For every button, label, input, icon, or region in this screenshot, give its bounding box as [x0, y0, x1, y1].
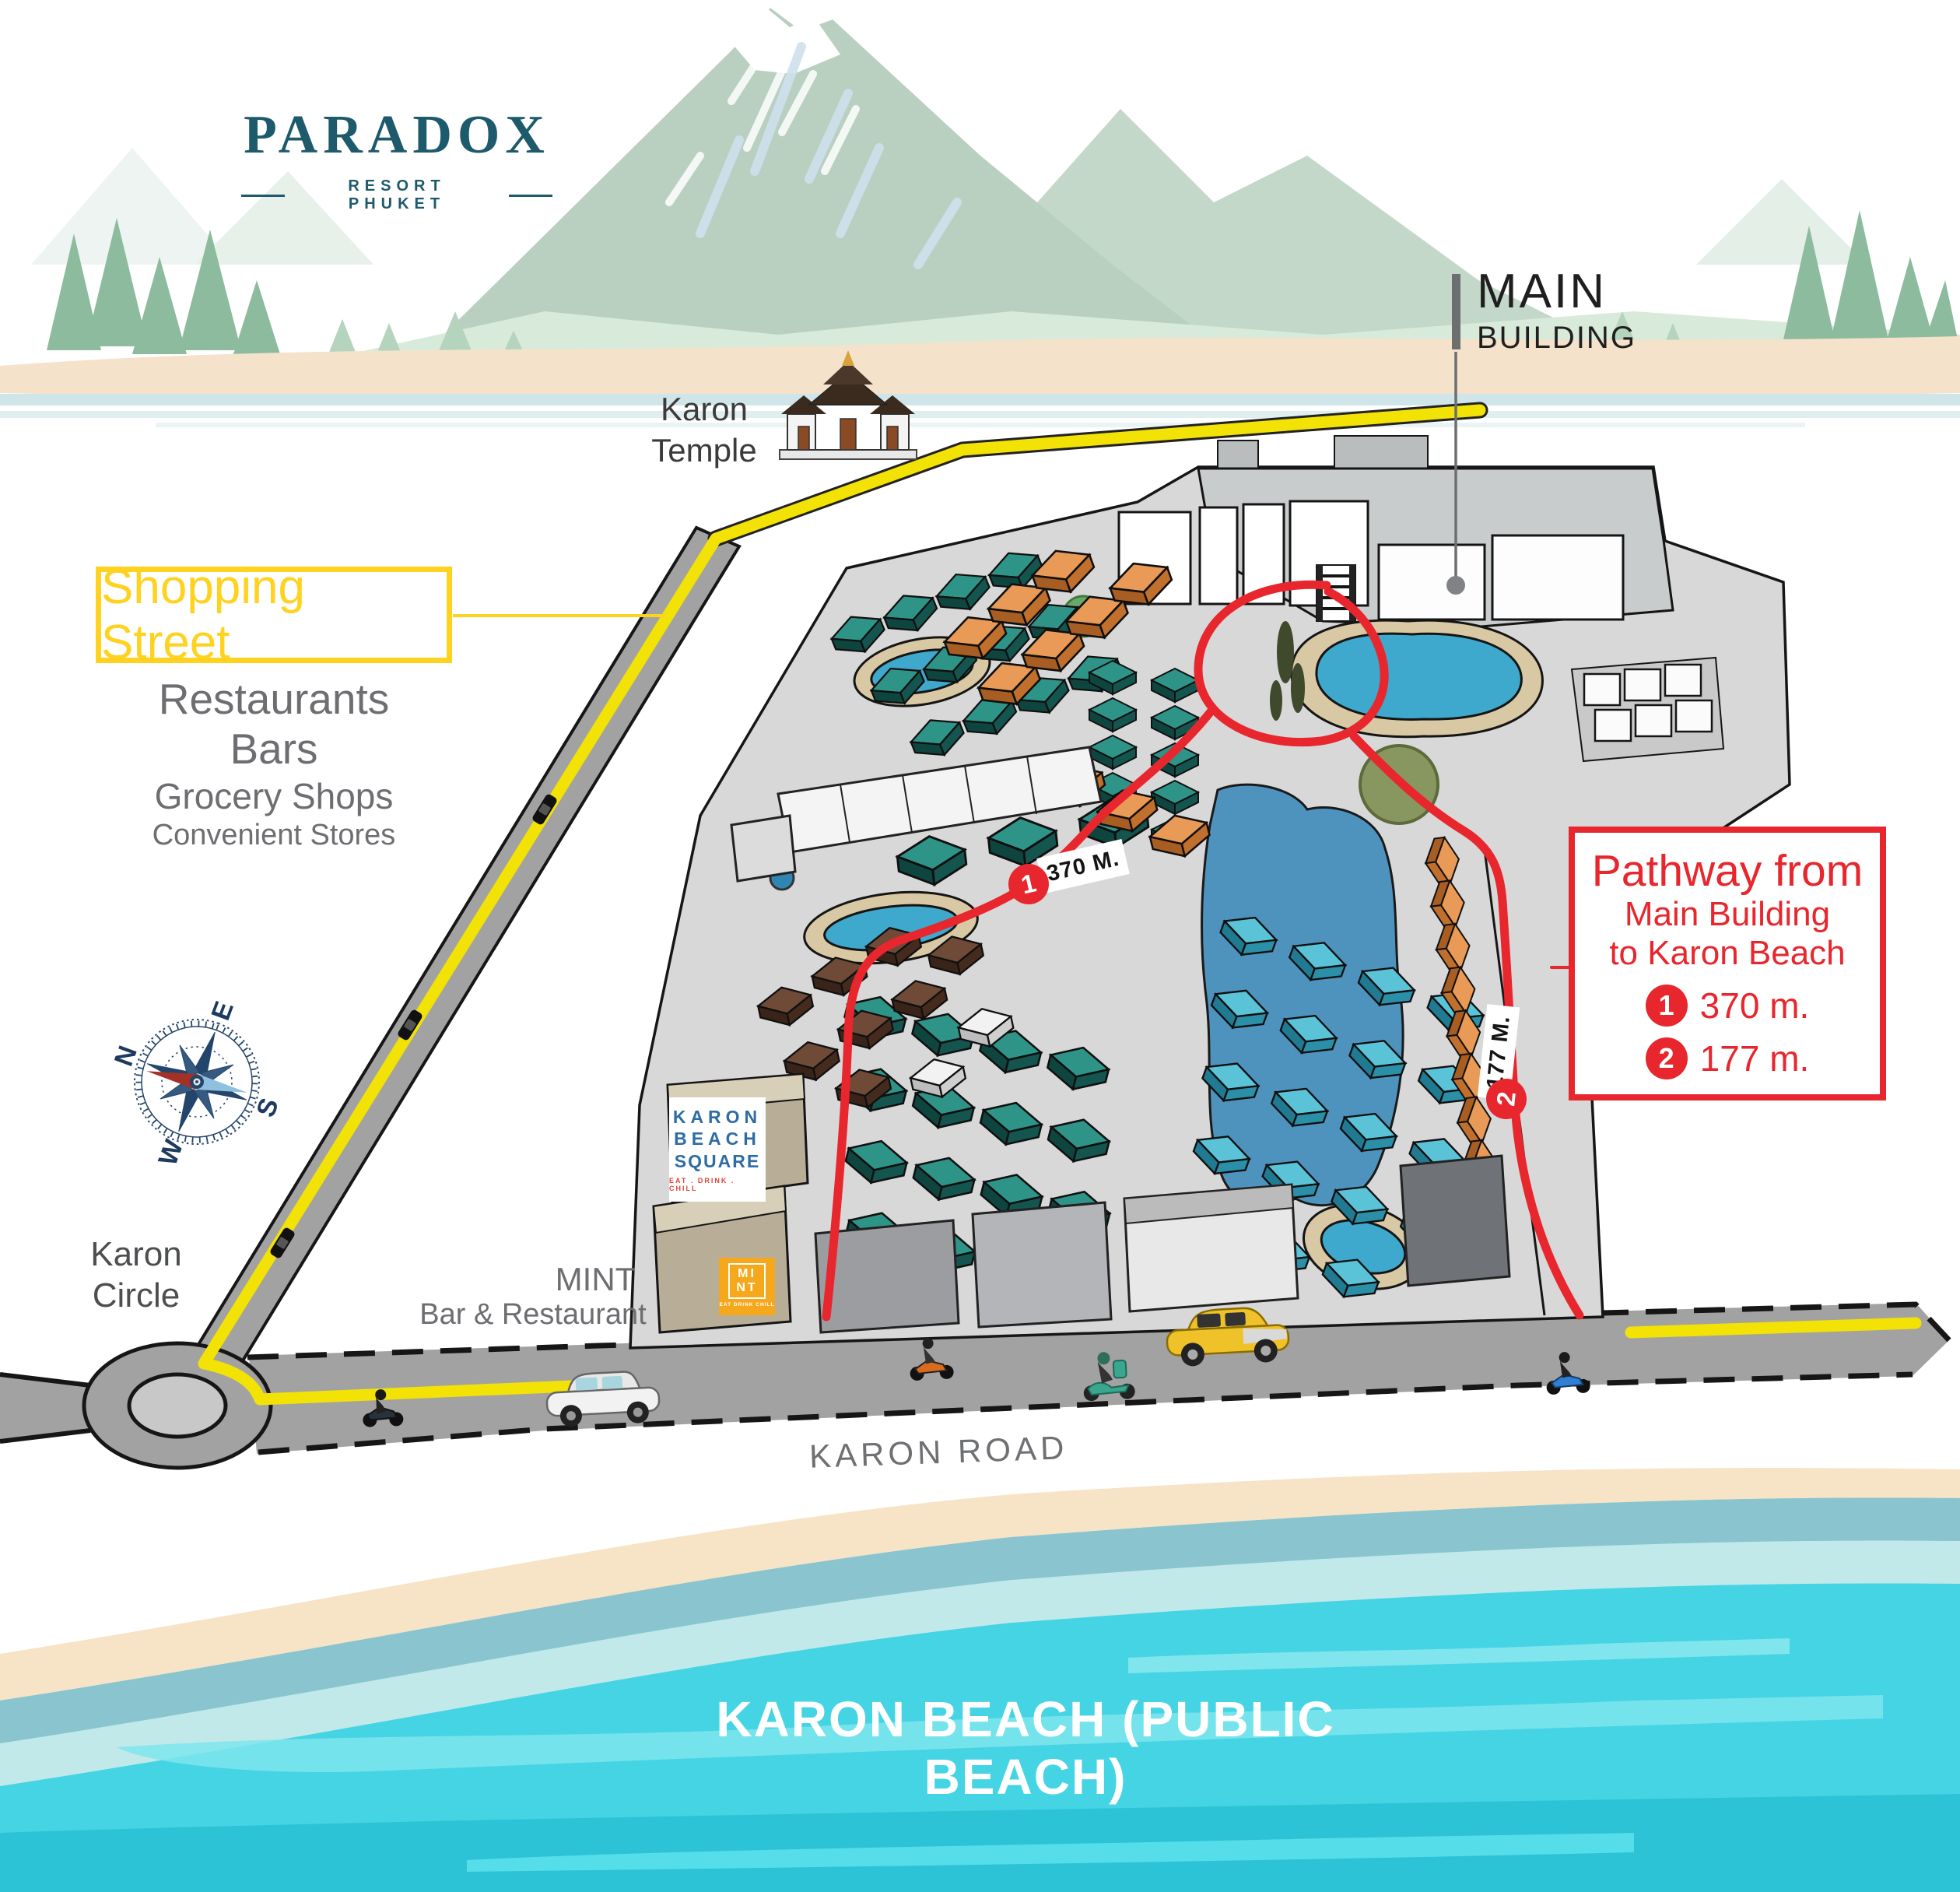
circle-label-line2: Circle [54, 1276, 218, 1317]
mint-logo-line1: MI [738, 1267, 756, 1281]
shopping-street-item: Convenient Stores [96, 819, 452, 852]
pathway-title: Pathway from [1592, 848, 1863, 895]
main-building-dot [1446, 576, 1465, 595]
pathway-line2: Main Building [1625, 895, 1830, 935]
pathway-line3: to Karon Beach [1609, 934, 1845, 974]
mint-logo-line2: NT [736, 1281, 757, 1295]
main-building-label-line1: MAIN [1477, 268, 1636, 316]
compass-e: E [205, 998, 239, 1024]
kbs-logo-line1: KARON [673, 1107, 762, 1127]
mint-logo: MI NT EAT DRINK CHILL [719, 1258, 775, 1315]
shopping-street-item: Bars [96, 724, 452, 774]
pathway-legend-row-2: 2 177 m. [1646, 1037, 1810, 1079]
shopping-street-title: Shopping Street [101, 560, 447, 670]
mint-restaurant-sublabel: Bar & Restaurant [405, 1298, 661, 1332]
kbs-logo-line3: SQUARE [675, 1151, 760, 1171]
sea-and-beach [0, 1468, 1960, 1892]
brand-logo: PARADOX RESORT PHUKET [241, 104, 552, 213]
kbs-logo-line2: BEACH [674, 1129, 761, 1149]
legend-marker-2: 2 [1646, 1037, 1688, 1079]
white-square-buildings [1572, 658, 1723, 761]
shopping-street-item: Grocery Shops [96, 775, 452, 817]
pathway-legend-row-1: 1 370 m. [1646, 985, 1810, 1027]
brand-tagline: RESORT PHUKET [296, 177, 499, 213]
karon-temple-label: Karon Temple [630, 389, 778, 471]
mint-restaurant-label: MINT [467, 1261, 724, 1298]
logo-dash-right [509, 195, 552, 197]
karon-beach-label: KARON BEACH (PUBLIC BEACH) [636, 1690, 1415, 1806]
kbs-logo-tagline: EAT . DRINK . CHILL [669, 1177, 766, 1192]
main-building-label: MAIN BUILDING [1477, 268, 1636, 353]
pathway-info-box: Pathway from Main Building to Karon Beac… [1569, 827, 1886, 1100]
mint-logo-tagline: EAT DRINK CHILL [720, 1302, 775, 1308]
compass-s: S [251, 1094, 284, 1121]
compass-n: N [109, 1042, 143, 1070]
shopping-street-item: Restaurants [96, 674, 452, 724]
karon-beach-square-logo: KARON BEACH SQUARE EAT . DRINK . CHILL [669, 1097, 766, 1202]
resort-map-page: N E S W [0, 0, 1960, 1892]
temple-label-line2: Temple [630, 430, 778, 472]
circle-label-line1: Karon [54, 1234, 218, 1276]
compass-w: W [153, 1136, 189, 1170]
legend-marker-1: 1 [1646, 985, 1688, 1027]
logo-dash-left [241, 195, 285, 197]
brand-name: PARADOX [241, 104, 552, 167]
shopping-street-box: Shopping Street [96, 567, 452, 663]
legend-distance-1: 370 m. [1700, 985, 1810, 1027]
main-building-label-line2: BUILDING [1477, 322, 1636, 353]
legend-distance-2: 177 m. [1700, 1037, 1810, 1079]
main-building-label-bar [1452, 274, 1460, 349]
temple-label-line1: Karon [630, 389, 778, 430]
main-pool [1317, 634, 1521, 719]
karon-circle-label: Karon Circle [54, 1234, 218, 1317]
mountain-backdrop [0, 8, 1960, 427]
compass-rose: N E S W [82, 972, 310, 1195]
